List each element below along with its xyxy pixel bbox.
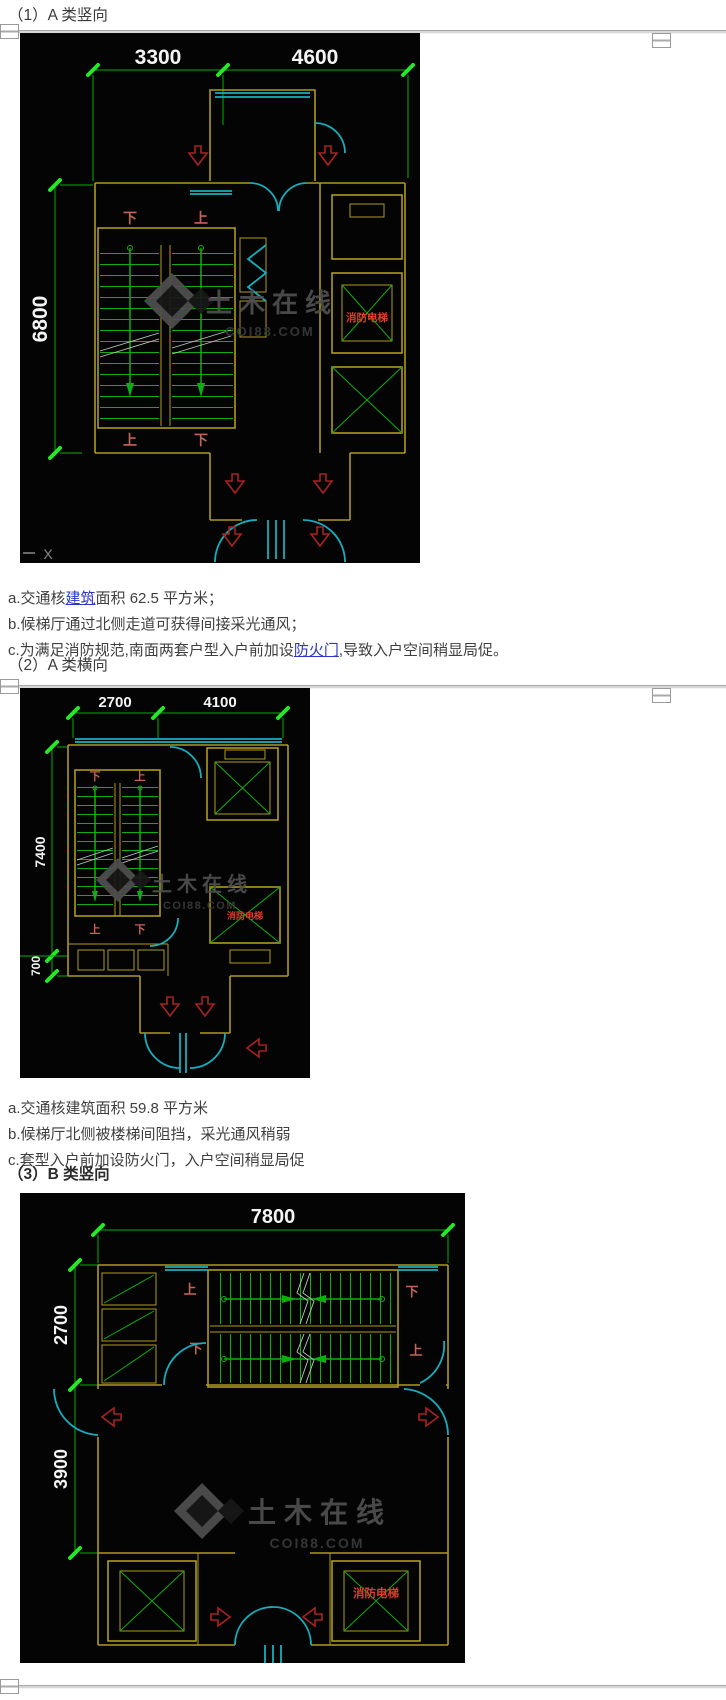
- frame-handle-right-2[interactable]: [652, 688, 671, 703]
- stair-label-up: 上: [135, 769, 146, 783]
- cad-drawing-a-horizontal: 2700 4100 7400 700: [20, 688, 310, 1078]
- note-2b: b.候梯厅北侧被楼梯间阻挡，采光通风稍弱: [8, 1123, 291, 1144]
- dim-label-3300: 3300: [135, 46, 182, 69]
- dim-label-2700: 2700: [98, 694, 131, 711]
- dim-label-700: 700: [29, 956, 43, 976]
- frame-handle-left-2[interactable]: [0, 679, 19, 694]
- frame-handle-right-1[interactable]: [652, 33, 671, 48]
- link-fanghuomen[interactable]: 防火门: [294, 642, 339, 659]
- frame-handle-left-3[interactable]: [0, 1679, 19, 1694]
- watermark-url: COI88.COM: [225, 324, 315, 339]
- stair-label-down: 下: [405, 1284, 418, 1299]
- frame-handle-left-1[interactable]: [0, 24, 19, 39]
- fire-elevator-shaft: 消防电梯: [332, 273, 402, 353]
- dim-label-4100: 4100: [203, 694, 236, 711]
- stair-label-down: 下: [90, 770, 101, 783]
- section-title-2: （2）A 类横向: [8, 653, 108, 675]
- fire-elevator-label: 消防电梯: [346, 311, 388, 324]
- cad-drawing-b-vertical: 7800 2700 3900: [20, 1193, 465, 1663]
- dim-label-6800: 6800: [29, 296, 52, 343]
- note-1b: b.候梯厅通过北侧走道可获得间接采光通风；: [8, 613, 306, 634]
- stair-label-up-2: 上: [123, 432, 137, 448]
- watermark-text: 土木在线: [206, 288, 338, 318]
- stair-label-up: 上: [194, 210, 208, 226]
- dim-label-4600: 4600: [292, 46, 339, 69]
- section-title-1: （1）A 类竖向: [8, 3, 108, 25]
- dim-label-2700: 2700: [51, 1305, 71, 1345]
- stair-label-down: 下: [123, 210, 137, 226]
- section-title-3: （3）B 类竖向: [8, 1162, 110, 1184]
- dim-label-7800: 7800: [251, 1206, 296, 1228]
- note-text: ,导致入户空间稍显局促。: [339, 642, 508, 659]
- stair-label-up: 上: [183, 1282, 196, 1297]
- note-text: a.交通核: [8, 590, 66, 607]
- watermark-url: COI88.COM: [163, 900, 237, 912]
- note-1a: a.交通核建筑面积 62.5 平方米；: [8, 587, 223, 608]
- watermark-text: 土木在线: [152, 872, 252, 896]
- stair-label-up-2: 上: [409, 1343, 422, 1358]
- dim-label-7400: 7400: [32, 836, 48, 867]
- axis-label: X: [43, 546, 53, 562]
- note-text: 面积 62.5 平方米；: [96, 590, 224, 607]
- link-jianzhu[interactable]: 建筑: [66, 590, 96, 607]
- watermark-url: COI88.COM: [269, 1535, 364, 1551]
- stair-label-up-2: 上: [90, 922, 101, 936]
- stair-label-down-2: 下: [135, 923, 146, 936]
- image-frame-divider-3: [0, 1685, 726, 1689]
- dim-label-3900: 3900: [51, 1449, 71, 1489]
- stair-label-down-2: 下: [194, 432, 208, 448]
- watermark-text: 土木在线: [248, 1497, 392, 1528]
- note-2a: a.交通核建筑面积 59.8 平方米: [8, 1097, 208, 1118]
- fire-elevator-label: 消防电梯: [353, 1586, 399, 1600]
- article-page: （1）A 类竖向 3300 4600 6800: [0, 0, 726, 1700]
- cad-drawing-a-vertical: 3300 4600 6800: [20, 33, 420, 563]
